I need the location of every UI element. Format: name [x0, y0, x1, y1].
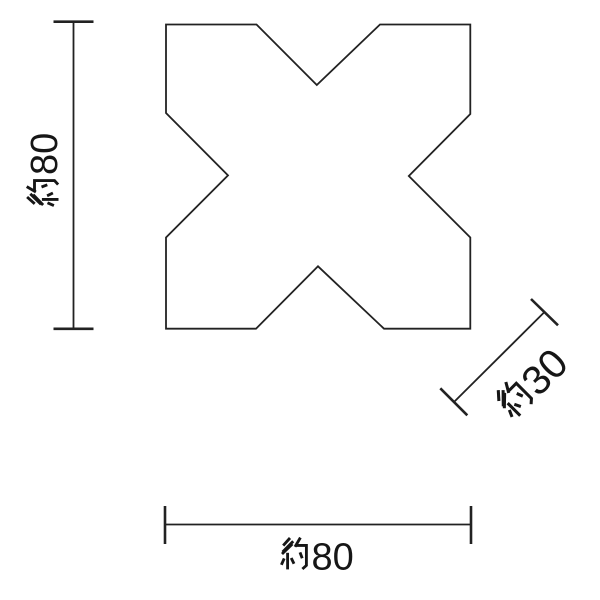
svg-text:80: 80 [312, 537, 354, 579]
svg-text:80: 80 [24, 133, 66, 175]
